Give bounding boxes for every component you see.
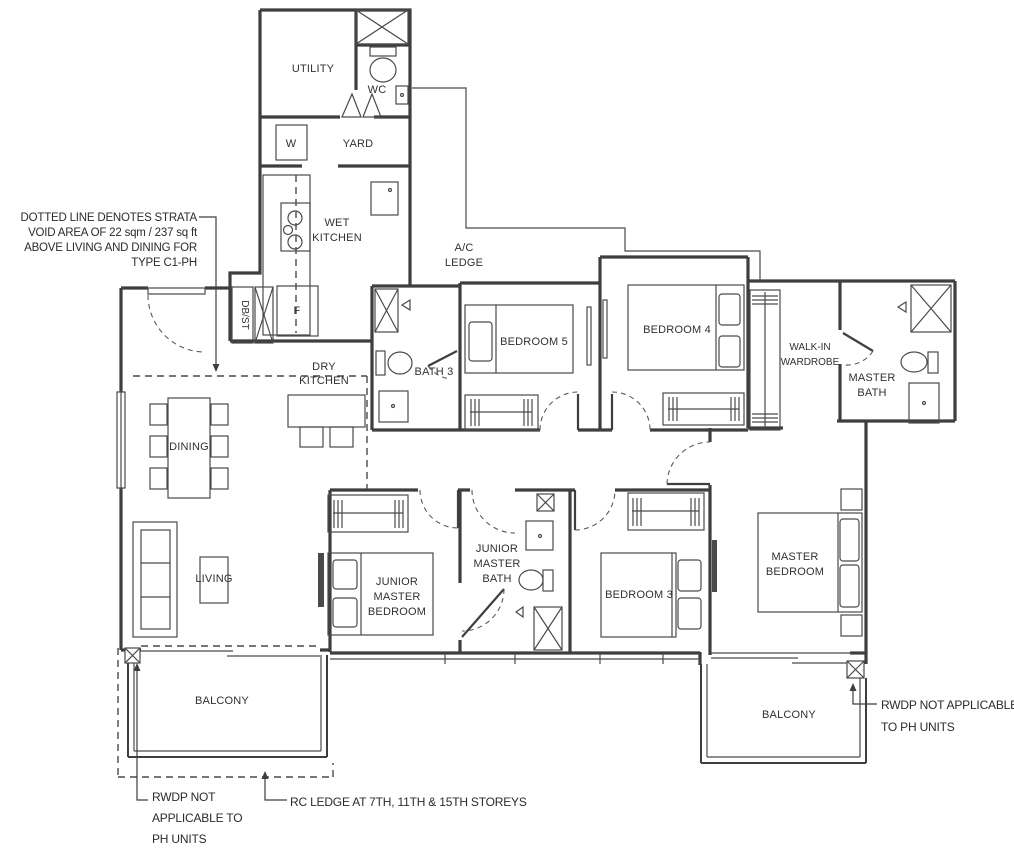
svg-text:KITCHEN: KITCHEN [299, 375, 349, 387]
dining-chair [150, 468, 167, 489]
junior-master-bath-fixtures [462, 490, 562, 650]
bedroom5-furniture [465, 305, 578, 430]
rwdp-right-note: RWDP NOT APPLICABLE TO PH UNITS [881, 698, 1014, 734]
dining-chair [211, 468, 228, 489]
door-leaf [428, 351, 457, 366]
room-labels: UTILITY WC YARD W WET KITCHEN F DB/ST A/… [169, 63, 895, 721]
door-leaf [148, 288, 205, 294]
toilet-cistern [543, 570, 553, 591]
basin [526, 521, 553, 550]
wc-basin [396, 86, 408, 104]
toilet-cistern [376, 351, 385, 375]
entrance-door [148, 288, 205, 352]
label-bedroom5: BEDROOM 5 [500, 336, 568, 348]
svg-text:MASTER: MASTER [373, 591, 420, 603]
toilet [901, 352, 927, 372]
pillow [678, 598, 701, 629]
kitchen-counter [263, 175, 310, 335]
window-bedroom4 [603, 300, 607, 358]
label-junior-master-bath: JUNIOR [476, 543, 518, 555]
wc-cistern [370, 47, 396, 56]
label-bedroom3: BEDROOM 3 [605, 589, 673, 601]
svg-text:LEDGE: LEDGE [445, 257, 483, 269]
pillow [469, 322, 492, 361]
bath3-fixtures [375, 289, 457, 422]
pillow [333, 598, 357, 627]
dining-chair [211, 436, 228, 457]
nightstand [841, 615, 862, 636]
floor-plan-page: UTILITY WC YARD W WET KITCHEN F DB/ST A/… [0, 0, 1014, 855]
bifold-door [342, 94, 381, 117]
pillow [678, 560, 701, 591]
master-bedroom-furniture [667, 442, 862, 636]
dining-chair [150, 436, 167, 457]
shower-entry-mark [898, 302, 906, 312]
window-bedroom5 [587, 307, 591, 365]
svg-text:BEDROOM: BEDROOM [368, 606, 426, 618]
svg-text:BATH: BATH [482, 573, 511, 585]
island-counter [288, 395, 365, 427]
label-master-bedroom: MASTER [771, 551, 818, 563]
label-balcony-right: BALCONY [762, 709, 816, 721]
vanity [909, 383, 939, 423]
pillow [333, 560, 357, 589]
svg-text:TYPE C1-PH: TYPE C1-PH [131, 257, 197, 269]
label-dining: DINING [169, 441, 209, 453]
label-utility: UTILITY [292, 63, 335, 75]
label-yard: YARD [343, 138, 374, 150]
toilet-cistern [928, 352, 938, 373]
label-living: LIVING [195, 573, 232, 585]
pillow [719, 336, 740, 367]
svg-text:APPLICABLE TO: APPLICABLE TO [152, 811, 242, 825]
svg-text:KITCHEN: KITCHEN [312, 232, 362, 244]
toilet [388, 352, 412, 374]
bedroom3-furniture [575, 490, 704, 637]
label-bedroom4: BEDROOM 4 [643, 324, 711, 336]
toilet [519, 570, 543, 590]
tv-console-living [318, 553, 324, 607]
svg-text:VOID AREA OF 22 sqm / 237 sq f: VOID AREA OF 22 sqm / 237 sq ft [28, 227, 198, 239]
label-wc: WC [368, 84, 387, 96]
svg-text:TO PH UNITS: TO PH UNITS [881, 720, 955, 734]
svg-text:DOTTED LINE DENOTES STRATA: DOTTED LINE DENOTES STRATA [21, 212, 198, 224]
door-leaf [843, 333, 873, 351]
tv-console-master [712, 540, 717, 592]
strata-void-note: DOTTED LINE DENOTES STRATA VOID AREA OF … [21, 212, 198, 269]
balcony-right-walls [701, 653, 866, 763]
shower-entry-mark [402, 300, 410, 310]
svg-text:RWDP NOT APPLICABLE: RWDP NOT APPLICABLE [881, 698, 1014, 712]
label-washer: W [286, 138, 297, 150]
stool [300, 427, 323, 447]
label-junior-master-bedroom: JUNIOR [376, 576, 418, 588]
label-balcony-left: BALCONY [195, 695, 249, 707]
rc-ledge-note: RC LEDGE AT 7TH, 11TH & 15TH STOREYS [290, 795, 527, 809]
walk-in-wardrobe-fixtures [750, 290, 780, 430]
label-bath3: BATH 3 [415, 366, 454, 378]
svg-text:MASTER: MASTER [473, 558, 520, 570]
label-master-bath: MASTER [848, 372, 895, 384]
label-ac-ledge: A/C [455, 242, 474, 254]
dining-chair [150, 404, 167, 425]
vanity [379, 391, 408, 422]
dining-chair [211, 404, 228, 425]
wc-toilet [370, 58, 396, 82]
svg-text:PH UNITS: PH UNITS [152, 832, 207, 846]
svg-text:BATH: BATH [857, 387, 886, 399]
label-wet-kitchen: WET [324, 217, 349, 229]
bedroom4-furniture [612, 285, 744, 430]
label-dbst: DB/ST [239, 300, 250, 329]
label-fridge: F [294, 305, 301, 317]
door-leaf [462, 589, 504, 637]
nightstand [841, 489, 862, 510]
floor-plan-drawing: UTILITY WC YARD W WET KITCHEN F DB/ST A/… [0, 0, 1014, 855]
svg-text:ABOVE LIVING AND DINING FOR: ABOVE LIVING AND DINING FOR [24, 242, 197, 254]
pillow [840, 565, 859, 607]
svg-text:WARDROBE: WARDROBE [781, 357, 840, 368]
pillow [719, 294, 740, 325]
stool [330, 427, 353, 447]
svg-text:RWDP NOT: RWDP NOT [152, 790, 216, 804]
svg-text:BEDROOM: BEDROOM [766, 566, 824, 578]
label-walk-in-wardrobe: WALK-IN [789, 342, 830, 353]
pillow [840, 519, 859, 561]
shower-entry-mark [516, 607, 523, 617]
master-bath-fixtures [843, 285, 951, 423]
label-dry-kitchen: DRY [312, 361, 336, 373]
kitchen-sink [371, 182, 398, 215]
rwdp-left-note: RWDP NOT APPLICABLE TO PH UNITS [152, 790, 242, 846]
